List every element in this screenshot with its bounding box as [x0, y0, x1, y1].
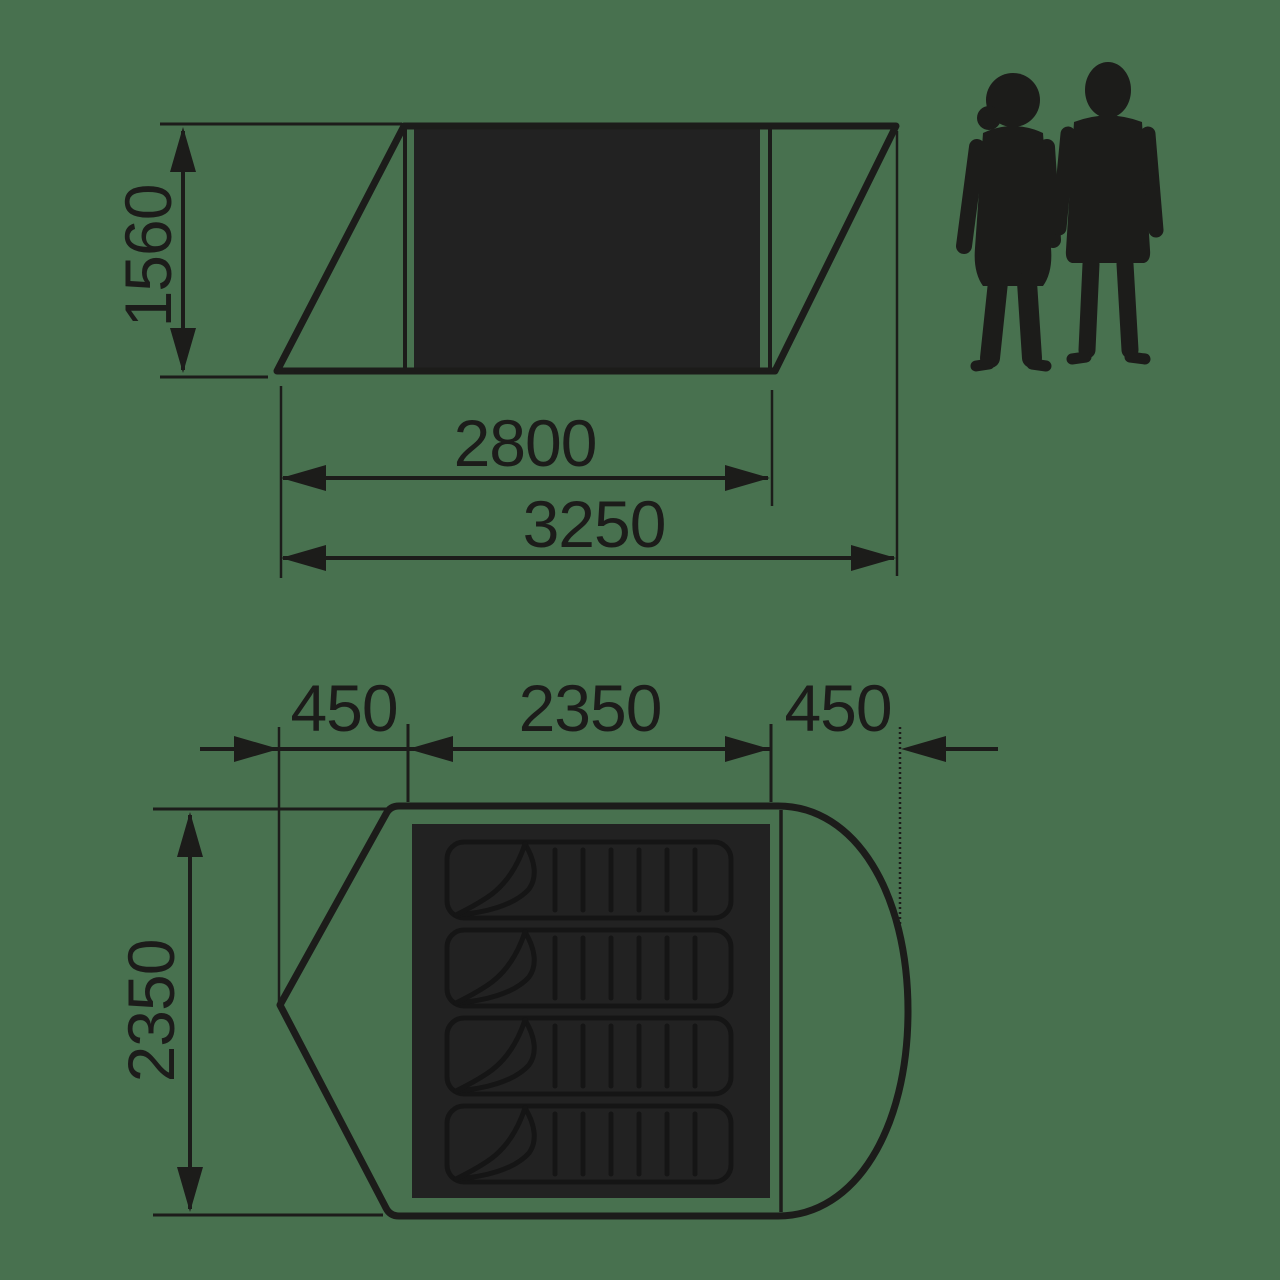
arrowhead-up — [170, 127, 196, 172]
arrowhead-left — [281, 465, 326, 491]
dimension-height-1560 — [160, 124, 402, 377]
side-view-door-panel — [414, 129, 760, 370]
arrowhead-down — [170, 328, 196, 373]
dim-label-porch-left-450: 450 — [290, 675, 397, 741]
dim-label-outer-width-3250: 3250 — [523, 491, 666, 557]
arrowhead-left — [901, 736, 946, 762]
arrowhead-left — [281, 545, 326, 571]
dim-label-porch-right-450: 450 — [784, 675, 891, 741]
arrowhead-up — [177, 812, 203, 857]
arrowhead-left — [408, 736, 453, 762]
diagram-linework — [0, 0, 1280, 1280]
dim-label-height-1560: 1560 — [115, 185, 181, 328]
scale-figures — [964, 62, 1156, 366]
tent-dimensions-diagram: 1560 2800 3250 450 2350 450 2350 — [0, 0, 1280, 1280]
arrowhead-right — [234, 736, 279, 762]
arrowhead-right — [725, 465, 770, 491]
arrowhead-down — [177, 1167, 203, 1212]
dim-label-inner-width-2800: 2800 — [454, 410, 597, 476]
woman-silhouette — [964, 73, 1053, 366]
dim-label-inner-length-2350: 2350 — [519, 675, 662, 741]
arrowhead-right — [725, 736, 770, 762]
arrowhead-right — [851, 545, 896, 571]
man-silhouette — [1059, 62, 1156, 359]
floor-panel — [412, 824, 770, 1198]
dim-label-width-2350: 2350 — [118, 940, 184, 1083]
top-view — [153, 724, 998, 1216]
